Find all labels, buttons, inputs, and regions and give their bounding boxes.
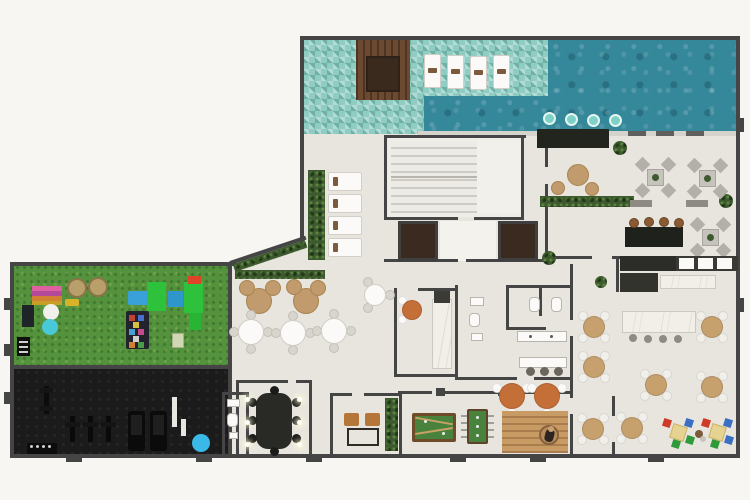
ceiling-lights: [297, 442, 302, 447]
wall-wc-left: [222, 392, 225, 454]
spa-firepit: [366, 56, 400, 92]
dining-table: [701, 376, 723, 398]
exercise-ball: [192, 434, 210, 452]
pilaster: [4, 298, 12, 310]
gym-machine: [106, 416, 111, 442]
dining-table: [583, 356, 605, 378]
buffet-stools: [674, 335, 682, 343]
meeting-chairs: [248, 434, 257, 443]
buffet-stools: [644, 335, 652, 343]
pantry-counter: [432, 299, 452, 369]
meeting-chairs: [270, 447, 279, 456]
wall-dining-a: [570, 264, 573, 320]
pilaster: [66, 456, 82, 462]
hopscotch-square: [129, 342, 135, 348]
wall-right: [736, 36, 740, 458]
amenity-floor-plan: [0, 0, 750, 500]
cafe-table-chair: [246, 344, 256, 354]
bar-stools: [659, 217, 669, 227]
pilaster: [450, 456, 466, 462]
in-pool-stools: [565, 113, 578, 126]
terrace-table-set-plant: [704, 175, 711, 182]
sandbox: [172, 333, 184, 348]
play-tower: [184, 282, 203, 313]
cabana-lounger-pillow: [497, 69, 506, 74]
elevator-lobby-floor: [440, 221, 496, 261]
wall-dininghall-a: [612, 396, 615, 416]
lounge-chair: [344, 413, 359, 426]
sink-counter: [517, 331, 567, 342]
lounge-table-frame: [347, 428, 379, 446]
wall-kitchen: [616, 256, 619, 292]
dining-table: [621, 417, 643, 439]
cafe-table: [321, 318, 347, 344]
dining-table: [701, 316, 723, 338]
ceiling-lights: [245, 442, 250, 447]
wall-stair-top: [384, 135, 526, 138]
pouf-small: [551, 181, 565, 195]
cafe-table: [280, 320, 306, 346]
wall-left: [10, 262, 14, 458]
in-pool-stools: [609, 114, 622, 127]
play-step-line: [19, 346, 28, 348]
gym-machine: [70, 416, 75, 442]
bar-stools: [629, 218, 639, 228]
cafe-table-chair: [288, 345, 298, 355]
pilaster: [738, 118, 744, 132]
wall-dininghall-b: [612, 442, 615, 454]
lounge-hedge: [385, 398, 398, 451]
buffet-stools: [659, 335, 667, 343]
planter-bench: [630, 200, 652, 207]
pilaster: [306, 456, 322, 462]
gym-machine-bar: [65, 422, 80, 427]
foosball-players: [476, 416, 479, 419]
wall-pantry-left: [394, 288, 397, 377]
in-pool-stools: [543, 112, 556, 125]
wall-lounge-right: [399, 393, 402, 454]
wall-top: [300, 36, 740, 40]
wall-meeting-right: [309, 380, 312, 456]
dumbbells: [48, 445, 51, 448]
hopscotch-square: [129, 329, 135, 335]
buffet-counter: [622, 311, 696, 333]
cafe-hedge: [235, 270, 325, 279]
terrace-table-set-plant: [652, 174, 659, 181]
pilaster: [4, 392, 12, 404]
wall-gym-divider: [12, 365, 231, 369]
gym-machine: [88, 416, 93, 442]
pantry-appliance: [434, 291, 450, 303]
stair-landing: [477, 141, 521, 213]
planter-bench: [686, 200, 708, 207]
kitchen-appliance: [717, 258, 732, 269]
wall-stall-bottom: [506, 327, 546, 330]
pouf-small: [310, 280, 326, 296]
elevator-shaft: [398, 221, 438, 261]
slide-blue: [128, 291, 149, 305]
treadmill-belt: [153, 415, 164, 435]
cafe-table-chair: [346, 326, 356, 336]
hopscotch-square: [138, 329, 144, 335]
treadmill-belt: [131, 415, 142, 435]
pilaster: [530, 456, 546, 462]
toilet: [551, 297, 562, 312]
sun-lounger-pillow: [333, 243, 338, 252]
vanity-stools: [526, 367, 535, 376]
ceiling-lights: [297, 397, 302, 402]
ceiling-lights: [245, 397, 250, 402]
hopscotch-square: [138, 315, 144, 321]
dining-table: [583, 316, 605, 338]
sun-lounger-pillow: [333, 177, 338, 186]
play-leg: [189, 313, 201, 330]
cafe-table: [238, 319, 264, 345]
hopscotch-square: [129, 315, 135, 321]
pouf-small: [265, 280, 281, 296]
pouf-small: [585, 182, 599, 196]
plant: [542, 251, 556, 265]
wall-wc-top: [222, 392, 248, 395]
pool-edge-stub: [686, 131, 704, 136]
wall-lounge-b: [364, 393, 402, 396]
terrace-hedge: [540, 196, 634, 207]
play-ball-white: [43, 304, 59, 320]
cafe-table-chair: [385, 290, 395, 300]
wall-post: [436, 388, 445, 396]
wall-pantry-bottom: [394, 374, 458, 377]
person-head: [548, 426, 554, 432]
kitchen-counter: [620, 273, 658, 292]
foosball-players: [476, 434, 479, 437]
meeting-chairs: [270, 386, 279, 395]
pilaster: [648, 456, 664, 462]
stair-divider: [391, 176, 477, 178]
billiard-balls: [442, 432, 445, 435]
kitchen-appliance: [698, 258, 713, 269]
wall-meeting-top-a: [236, 380, 288, 383]
wc-fixture: [471, 333, 483, 341]
dumbbells: [36, 445, 39, 448]
wc-toilet: [469, 313, 480, 327]
pouf-small: [286, 279, 302, 295]
meeting-table: [256, 393, 292, 449]
wall-bath-top: [506, 285, 570, 288]
gym-machine-bar: [83, 422, 98, 427]
play-step-line: [19, 341, 28, 343]
wc-toilet: [227, 413, 238, 427]
toy-yellow: [65, 299, 79, 306]
gym-bar: [172, 397, 177, 427]
wall-mid-a: [455, 377, 517, 380]
wc-fixture: [229, 432, 238, 439]
hopscotch-square: [133, 322, 139, 328]
faucets: [550, 335, 553, 338]
play-ball-blue: [42, 319, 58, 335]
plant: [613, 141, 627, 155]
wc-sink: [470, 297, 484, 306]
pilaster: [4, 344, 12, 356]
swim-up-bar: [537, 129, 609, 148]
wc-sink: [227, 399, 240, 407]
ceiling-lights: [297, 420, 302, 425]
pool-water-arm: [424, 96, 554, 132]
deck-planter: [308, 170, 325, 260]
dining-table: [645, 374, 667, 396]
cabana-lounger-pillow: [474, 70, 483, 75]
billiard-balls: [424, 420, 427, 423]
play-platform: [147, 282, 166, 311]
plant: [595, 276, 607, 288]
ceiling-lights: [245, 420, 250, 425]
wall-lounge-a: [330, 393, 352, 396]
in-pool-stools: [587, 114, 600, 127]
cafe-table: [364, 284, 386, 306]
wall-games-a: [398, 391, 432, 394]
faucets: [529, 335, 532, 338]
sun-lounger-pillow: [333, 199, 338, 208]
kitchen-appliance: [679, 258, 694, 269]
dumbbells: [30, 445, 33, 448]
play-roof-red: [188, 276, 201, 284]
wall-leftwing-top: [10, 262, 236, 266]
bar-stools: [674, 218, 684, 228]
pouf-small: [239, 280, 255, 296]
play-bridge: [168, 291, 183, 307]
cabana-lounger-pillow: [451, 69, 460, 74]
bar-island: [625, 227, 683, 247]
wall-lounge-left: [330, 393, 333, 454]
cafe-table-chair: [329, 343, 339, 353]
elevator-shaft: [498, 221, 538, 261]
play-step-line: [19, 351, 28, 353]
vanity-stools: [554, 367, 563, 376]
buffet-stools: [629, 334, 637, 342]
gym-bar: [181, 419, 186, 436]
terrace-table-set-plant: [707, 234, 714, 241]
kitchen-marble-counter: [660, 275, 716, 289]
pool-edge-stub: [628, 131, 646, 136]
sun-lounger-pillow: [333, 221, 338, 230]
hopscotch-square: [138, 342, 144, 348]
vanity-stools: [540, 367, 549, 376]
stepping-stone: [67, 278, 87, 298]
pouf-large: [567, 164, 589, 186]
terracotta-table: [534, 383, 560, 409]
gym-machine-bar: [101, 422, 116, 427]
wall-stair-left: [384, 135, 387, 220]
toy: [700, 436, 706, 442]
wall-stair-right: [521, 135, 524, 220]
cabana-lounger-pillow: [428, 68, 437, 73]
gym-bench-bar: [40, 388, 53, 393]
pool-edge-stub: [656, 131, 674, 136]
wall-dining-b: [570, 336, 573, 398]
stepping-stone: [88, 277, 108, 297]
bar-stools: [644, 217, 654, 227]
terracotta-table: [499, 383, 525, 409]
wall-stair-bottom-a: [384, 217, 458, 220]
dining-table: [582, 418, 604, 440]
toilet: [529, 297, 540, 312]
wall-dining-c: [570, 414, 573, 454]
pilaster: [196, 456, 212, 462]
wall-mid-b: [534, 377, 572, 380]
dumbbells: [42, 445, 45, 448]
lounge-chair: [365, 413, 380, 426]
wall-stair-bottom-b: [474, 217, 524, 220]
wall-mid-v: [455, 285, 458, 380]
pantry-table: [402, 300, 422, 320]
wall-left-upper: [300, 36, 304, 242]
foosball-players: [476, 425, 479, 428]
wall-bath-left: [506, 285, 509, 329]
play-bench: [22, 305, 34, 327]
wall-bottom: [10, 454, 740, 458]
kitchen-counter: [620, 256, 676, 271]
pilaster: [738, 298, 744, 312]
gym-bench-bar: [40, 406, 53, 411]
